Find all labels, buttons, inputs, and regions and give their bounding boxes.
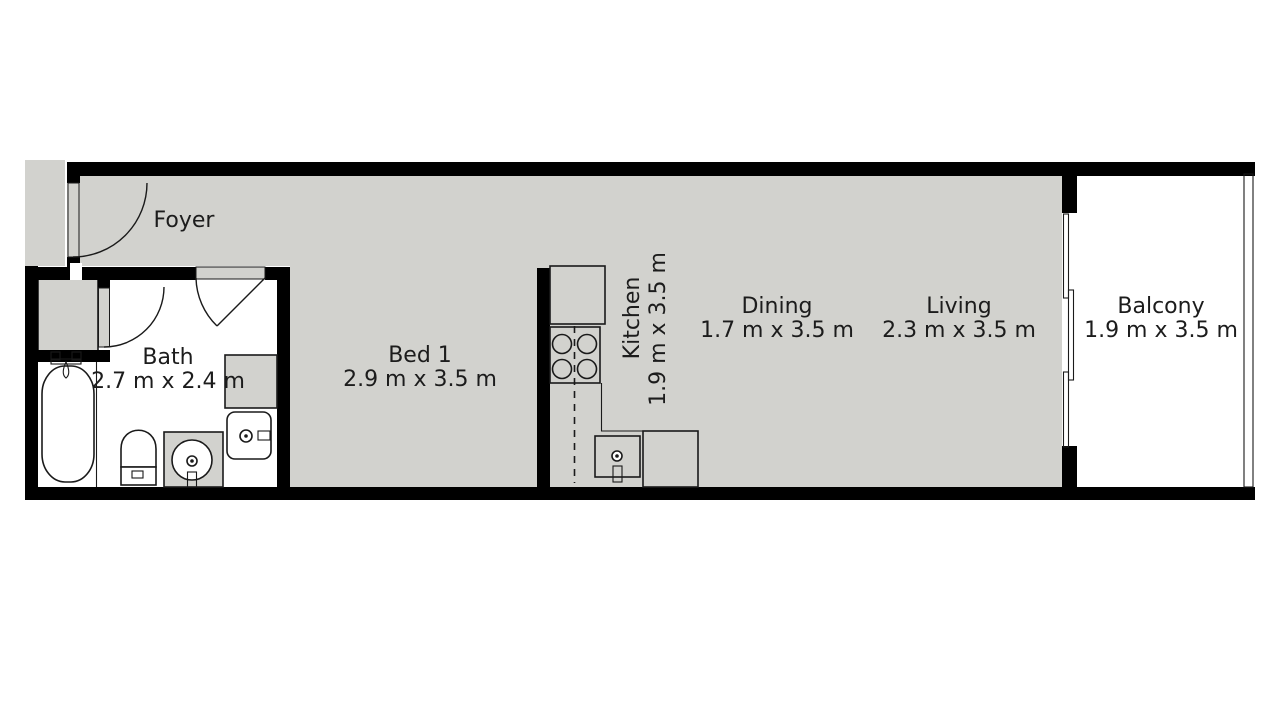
floorplan-svg: Foyer Bath 2.7 m x 2.4 m Bed 1 2.9 m x 3… (0, 0, 1280, 720)
vanity-drain-dot (190, 459, 194, 463)
room-label-bed-1: Bed 1 (388, 343, 452, 368)
wall-bath-bed (277, 267, 290, 487)
room-label-bath: Bath (142, 345, 193, 370)
wall-notch (70, 263, 82, 280)
closet-box (38, 277, 98, 352)
corridor-floor (25, 160, 65, 266)
toilet (121, 430, 156, 485)
toilet-cistern (121, 467, 156, 485)
bath-door-opening (196, 267, 265, 279)
wall-bed-kitchen (537, 268, 550, 487)
room-label-balcony: Balcony (1117, 294, 1204, 319)
floorplan-page: Foyer Bath 2.7 m x 2.4 m Bed 1 2.9 m x 3… (0, 0, 1280, 720)
room-dims-kitchen: 1.9 m x 3.5 m (646, 252, 671, 406)
room-dims-bath: 2.7 m x 2.4 m (91, 369, 245, 394)
kitchen-counter (643, 431, 698, 487)
closet (38, 277, 98, 352)
washer-door-dot (244, 434, 248, 438)
wall-tub-stub (25, 350, 110, 362)
closet-door-leaf (99, 288, 110, 347)
kitchen-sink (595, 436, 640, 482)
entry-door-leaf (68, 183, 79, 257)
room-dims-bed-1: 2.9 m x 3.5 m (343, 367, 497, 392)
room-label-dining: Dining (741, 294, 812, 319)
wall-entry-top (67, 162, 80, 183)
room-dims-balcony: 1.9 m x 3.5 m (1084, 318, 1238, 343)
bathtub-body (42, 366, 94, 482)
wall-left (25, 266, 38, 500)
wall-balcony-bottom (1062, 446, 1077, 500)
washing-machine (227, 412, 271, 459)
room-label-foyer: Foyer (154, 208, 216, 233)
toilet-bowl (121, 430, 156, 467)
vanity-sink (164, 432, 223, 487)
kitchen-sink-dot (615, 454, 619, 458)
wall-balcony-top (1062, 162, 1077, 213)
wall-bath-top-1 (25, 267, 70, 280)
fridge (550, 266, 605, 324)
room-dims-dining: 1.7 m x 3.5 m (700, 318, 854, 343)
room-dims-living: 2.3 m x 3.5 m (882, 318, 1036, 343)
room-label-kitchen: Kitchen (620, 277, 645, 360)
room-label-living: Living (926, 294, 991, 319)
wall-closet-hinge (98, 276, 110, 288)
